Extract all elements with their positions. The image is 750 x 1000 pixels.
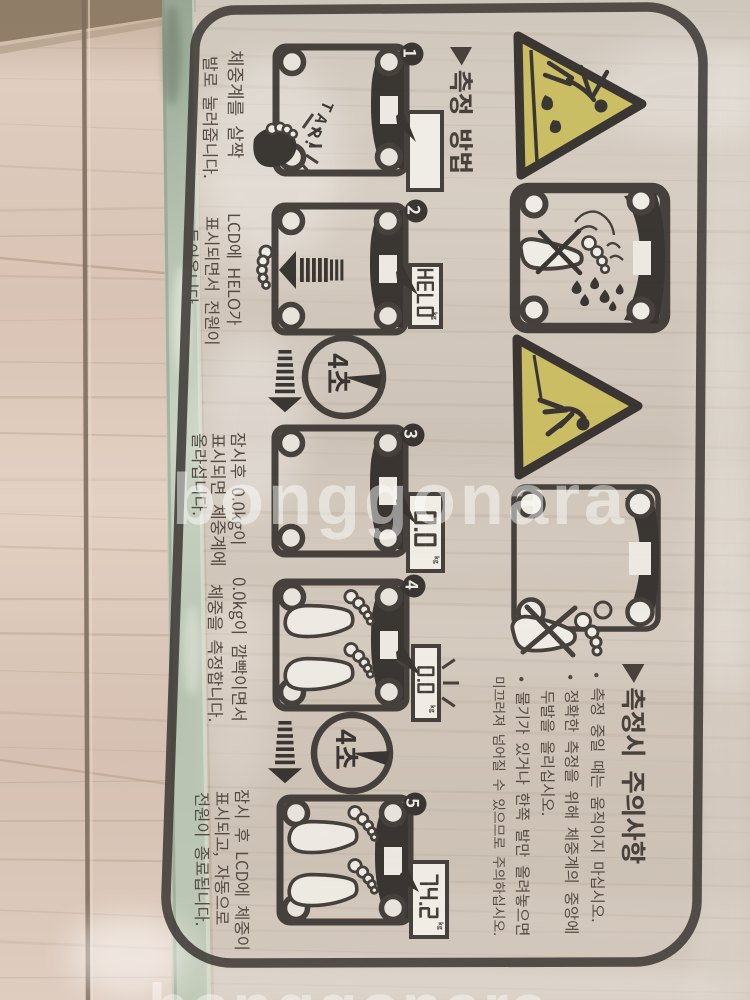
svg-text:bonggonara: bonggonara — [148, 970, 549, 1000]
svg-text:bonggonara: bonggonara — [172, 460, 628, 540]
